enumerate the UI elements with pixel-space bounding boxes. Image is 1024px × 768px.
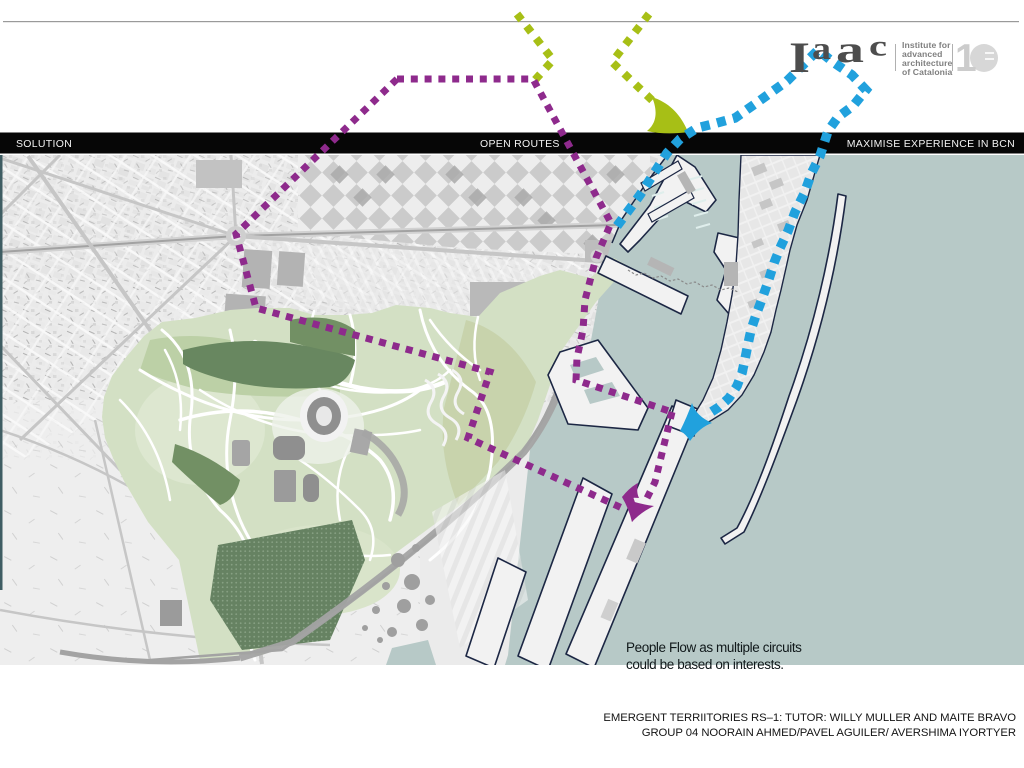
svg-text:1: 1 [955, 37, 977, 80]
svg-text:a: a [812, 30, 831, 66]
svg-text:c: c [869, 30, 887, 63]
svg-text:I: I [789, 35, 810, 82]
svg-text:a: a [836, 29, 864, 71]
